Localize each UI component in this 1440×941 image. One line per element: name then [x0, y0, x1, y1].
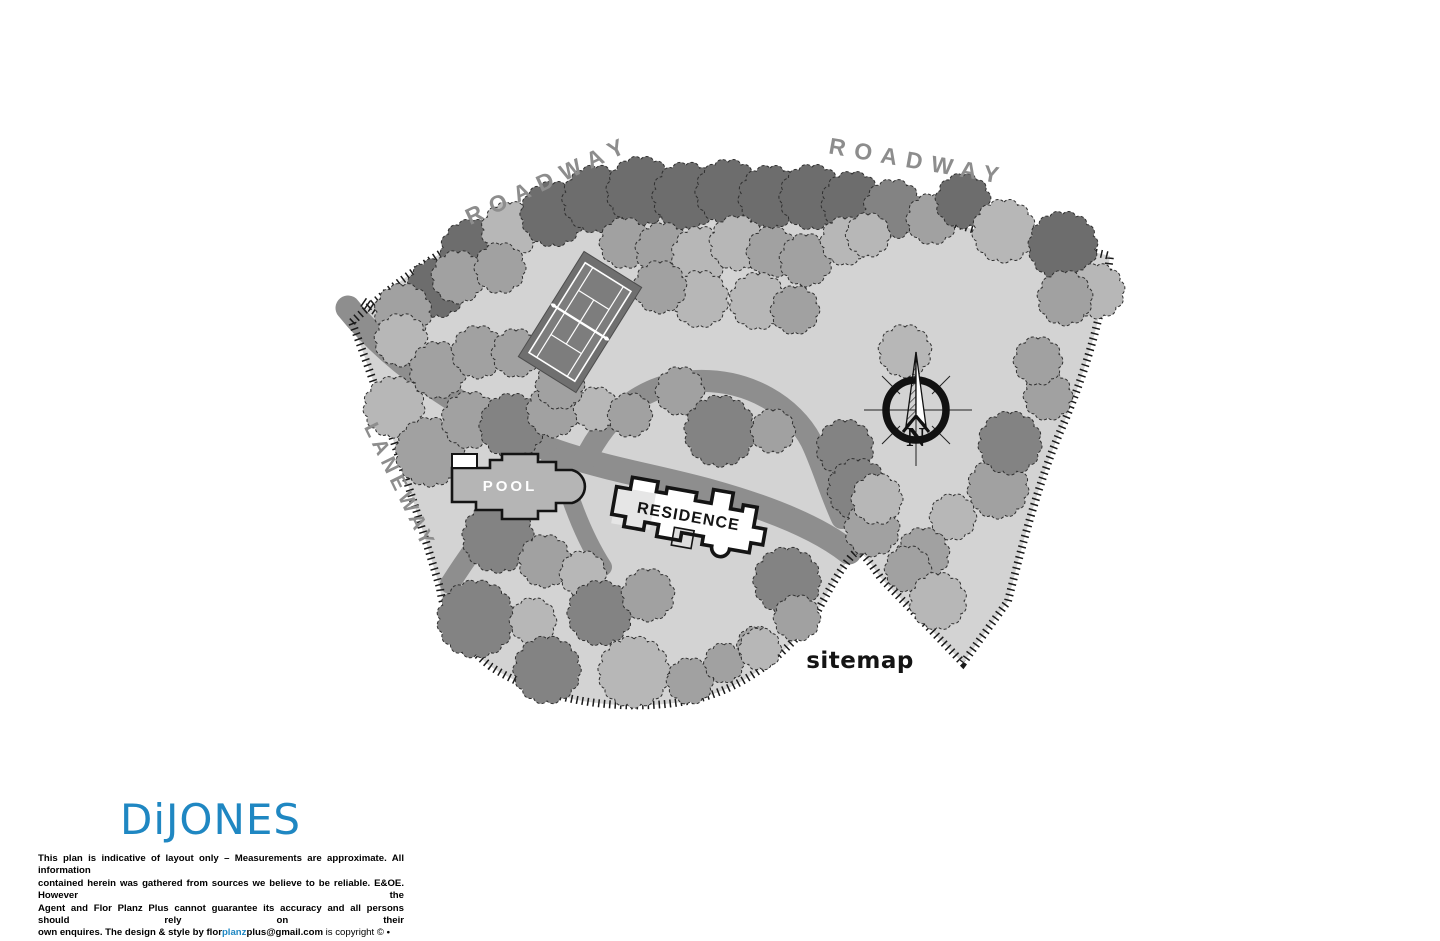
sitemap-label: sitemap [806, 648, 914, 674]
tree [773, 595, 821, 641]
disclaimer: This plan is indicative of layout only –… [38, 853, 404, 941]
disclaimer-bullet: • [387, 927, 390, 938]
tree [770, 286, 820, 334]
disclaimer-line-4: own enquires. The design & style by flor… [38, 927, 404, 941]
tree [750, 409, 795, 453]
tree [607, 393, 652, 437]
tree [851, 474, 903, 524]
disclaimer-email: plus@gmail.com [246, 927, 323, 938]
tree [474, 243, 526, 293]
disclaimer-line-2: contained herein was gathered from sourc… [38, 878, 404, 903]
tree [845, 213, 890, 257]
disclaimer-planz: planz [222, 927, 247, 938]
pool-step [452, 454, 477, 468]
agency-logo: DiJONES [120, 795, 301, 844]
tree [929, 494, 977, 540]
compass-north-label: N [906, 422, 926, 452]
pool-label: POOL [483, 478, 538, 495]
tree [1013, 337, 1063, 385]
disclaimer-copyright: is copyright © [323, 927, 387, 938]
tree [509, 598, 557, 644]
disclaimer-line-3: Agent and Flor Planz Plus cannot guarant… [38, 903, 404, 928]
disclaimer-line4-prefix: own enquires. The design & style by [38, 927, 206, 938]
tree [910, 573, 967, 630]
disclaimer-flor: flor [206, 927, 221, 938]
tree [738, 628, 781, 670]
disclaimer-line-1: This plan is indicative of layout only –… [38, 853, 404, 878]
site-plan-page: POOL RESIDENCE N ROADWAY ROADWAY [0, 0, 1440, 941]
